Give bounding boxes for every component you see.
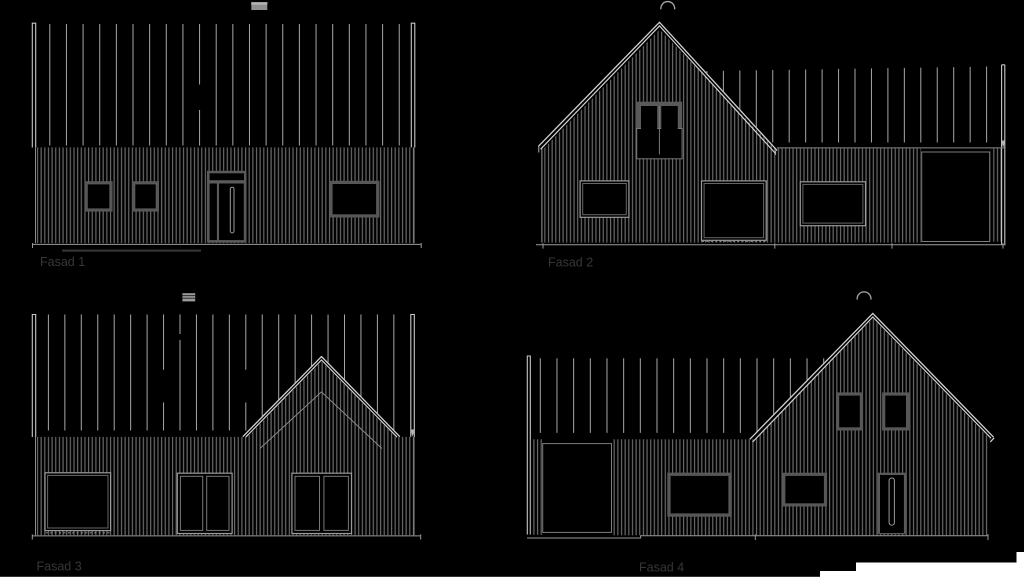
svg-text:Fasad 4: Fasad 4 (639, 561, 684, 575)
svg-text:Fasad 3: Fasad 3 (37, 560, 82, 574)
svg-text:Fasad 2: Fasad 2 (548, 256, 593, 270)
svg-text:Fasad 1: Fasad 1 (40, 255, 85, 269)
